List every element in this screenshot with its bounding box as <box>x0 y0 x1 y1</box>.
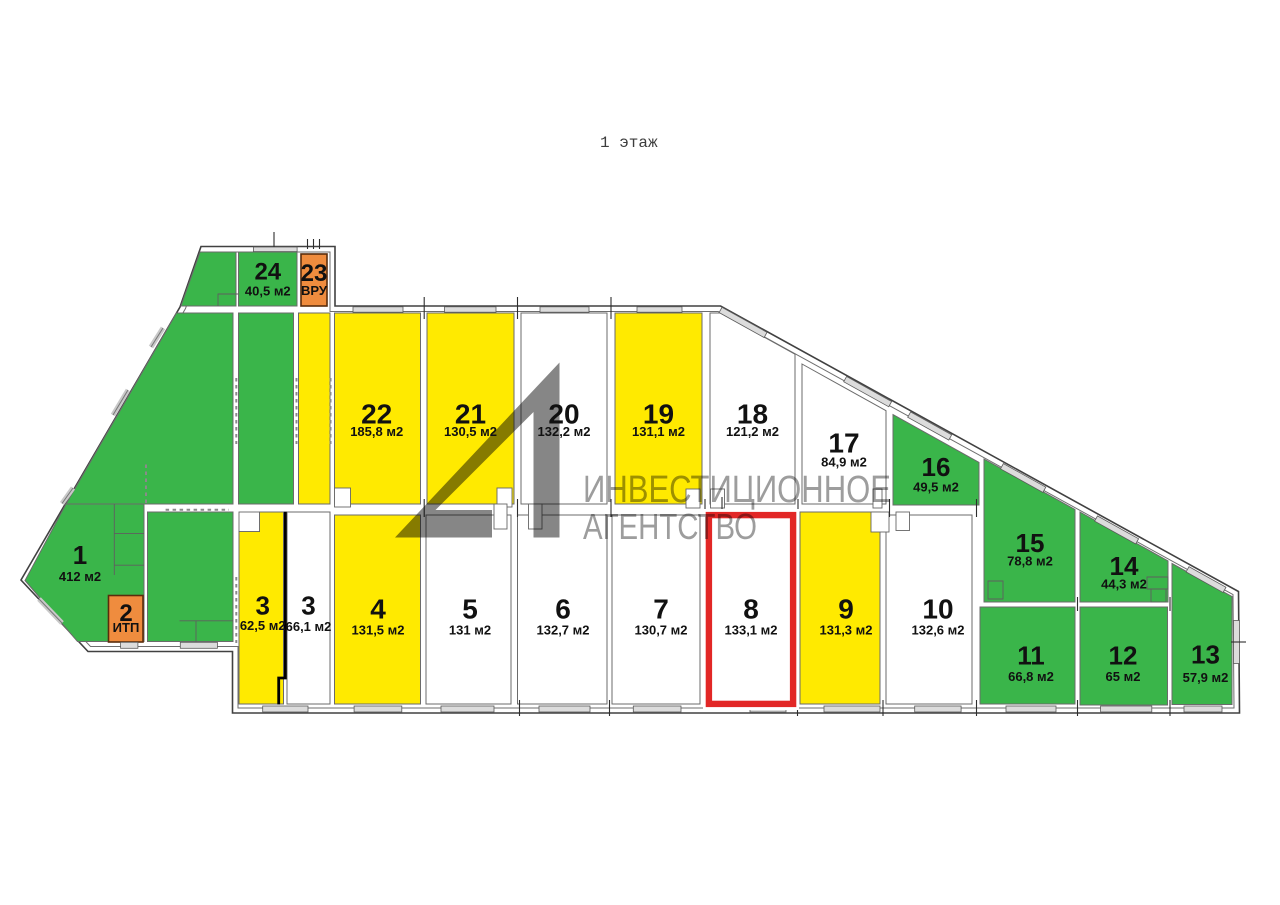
svg-text:132,2 м2: 132,2 м2 <box>538 424 591 439</box>
svg-text:АГЕНТСТВО: АГЕНТСТВО <box>583 506 757 547</box>
svg-text:ВРУ: ВРУ <box>301 283 328 298</box>
svg-text:130,7 м2: 130,7 м2 <box>635 623 688 638</box>
svg-text:10: 10 <box>922 594 953 625</box>
svg-text:4: 4 <box>370 594 386 625</box>
svg-text:412 м2: 412 м2 <box>59 569 101 584</box>
svg-text:132,6 м2: 132,6 м2 <box>912 623 965 638</box>
svg-text:131,5 м2: 131,5 м2 <box>352 623 405 638</box>
svg-text:1 этаж: 1 этаж <box>600 134 658 152</box>
svg-text:131,1 м2: 131,1 м2 <box>632 424 685 439</box>
svg-text:7: 7 <box>653 594 669 625</box>
svg-text:62,5 м2: 62,5 м2 <box>240 618 286 633</box>
svg-text:131,3 м2: 131,3 м2 <box>820 623 873 638</box>
svg-text:130,5 м2: 130,5 м2 <box>444 424 497 439</box>
svg-text:65 м2: 65 м2 <box>1106 669 1141 684</box>
svg-text:9: 9 <box>838 594 854 625</box>
svg-text:16: 16 <box>922 452 951 482</box>
svg-text:6: 6 <box>555 594 571 625</box>
svg-text:ИНВЕСТИЦИОННОЕ: ИНВЕСТИЦИОННОЕ <box>583 469 891 511</box>
svg-text:78,8 м2: 78,8 м2 <box>1007 554 1053 569</box>
svg-text:3: 3 <box>301 591 315 621</box>
svg-text:1: 1 <box>73 540 87 570</box>
svg-text:13: 13 <box>1191 640 1220 670</box>
svg-text:40,5 м2: 40,5 м2 <box>245 284 291 299</box>
svg-text:44,3 м2: 44,3 м2 <box>1101 577 1147 592</box>
svg-text:24: 24 <box>254 259 281 286</box>
svg-text:84,9 м2: 84,9 м2 <box>821 455 867 470</box>
svg-text:57,9 м2: 57,9 м2 <box>1183 670 1229 685</box>
svg-text:49,5 м2: 49,5 м2 <box>913 480 959 495</box>
svg-text:8: 8 <box>743 594 759 625</box>
svg-text:5: 5 <box>462 594 478 625</box>
svg-text:66,1 м2: 66,1 м2 <box>286 619 332 634</box>
svg-text:121,2 м2: 121,2 м2 <box>726 424 779 439</box>
svg-text:3: 3 <box>255 591 269 621</box>
svg-text:66,8 м2: 66,8 м2 <box>1008 669 1054 684</box>
svg-text:11: 11 <box>1017 641 1045 671</box>
svg-text:131 м2: 131 м2 <box>449 623 491 638</box>
svg-text:185,8 м2: 185,8 м2 <box>350 424 403 439</box>
svg-text:ИТП: ИТП <box>113 620 140 635</box>
svg-text:132,7 м2: 132,7 м2 <box>537 623 590 638</box>
svg-text:12: 12 <box>1109 641 1138 671</box>
svg-text:133,1 м2: 133,1 м2 <box>725 623 778 638</box>
